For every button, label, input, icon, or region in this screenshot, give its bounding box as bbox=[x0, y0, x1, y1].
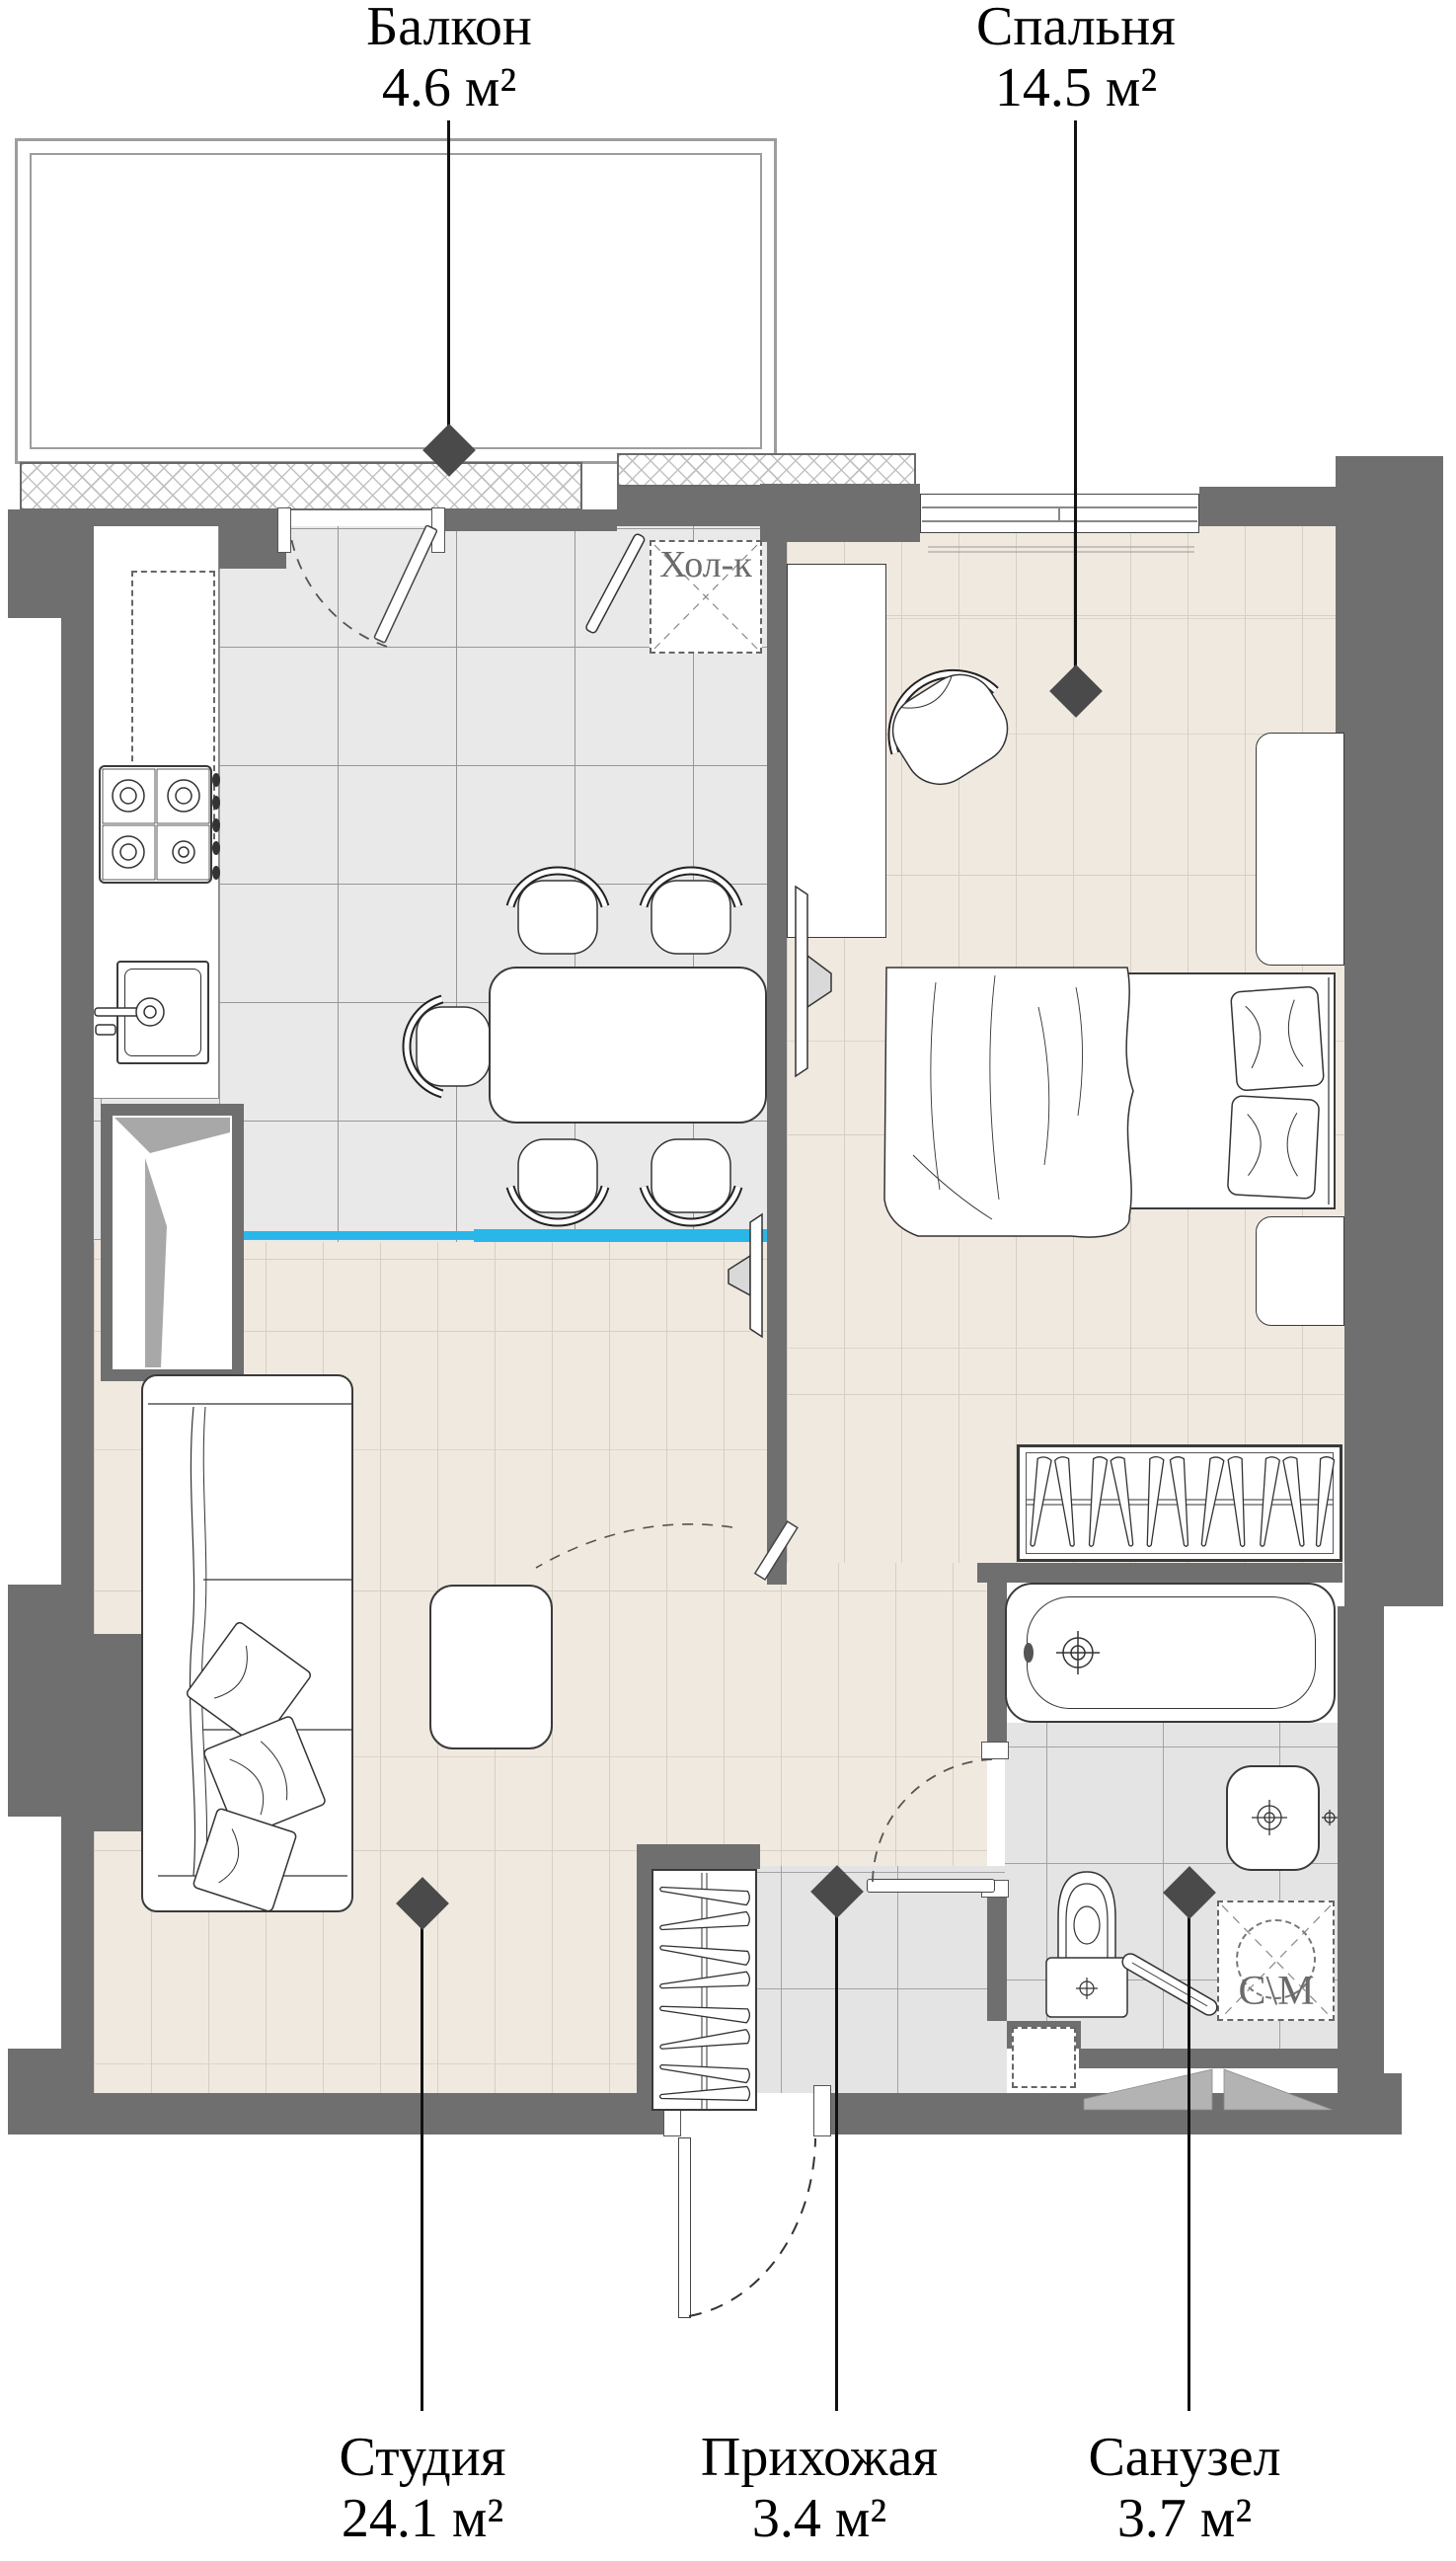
wall bbox=[437, 509, 617, 531]
wash-basin bbox=[1226, 1765, 1320, 1871]
door-jamb bbox=[981, 1742, 1009, 1759]
room-area: 14.5 м² bbox=[869, 57, 1283, 118]
kitchen-cabinet-inner bbox=[113, 1116, 232, 1369]
hallway-leader bbox=[835, 1907, 838, 2411]
bottom-wall bbox=[817, 2093, 1402, 2134]
wall bbox=[1344, 733, 1443, 1606]
wardrobe-hallway bbox=[651, 1869, 757, 2111]
room-area: 24.1 м² bbox=[215, 2488, 630, 2549]
entrance-door-arc bbox=[689, 2138, 815, 2316]
closet-wall bbox=[637, 1844, 760, 1869]
bath-mat bbox=[1012, 2027, 1076, 2088]
entrance-door-leaf bbox=[678, 2137, 691, 2318]
wall-pier bbox=[1336, 456, 1443, 733]
studio-label: Студия 24.1 м² bbox=[215, 2427, 630, 2549]
closet-wall bbox=[637, 1869, 651, 2093]
door-jamb bbox=[431, 507, 445, 553]
bathtub-inner bbox=[1027, 1596, 1316, 1709]
kitchen-sink-bowl bbox=[124, 969, 201, 1056]
kitchen-window bbox=[617, 453, 916, 487]
room-name: Прихожая bbox=[612, 2427, 1027, 2488]
balcony-frame-inner bbox=[30, 153, 762, 449]
wall bbox=[61, 526, 94, 2134]
zone-divider bbox=[474, 1229, 767, 1242]
bed bbox=[893, 972, 1336, 1209]
bedroom-leader bbox=[1074, 120, 1077, 675]
wall bbox=[1079, 2049, 1338, 2068]
room-area: 4.6 м² bbox=[242, 57, 656, 118]
bathroom-label: Санузел 3.7 м² bbox=[977, 2427, 1392, 2549]
bathroom-wall bbox=[977, 1563, 1342, 1583]
bathroom-door-leaf bbox=[867, 1879, 995, 1893]
wall-pier bbox=[94, 1634, 141, 1831]
floor-plan: Хол-к С\М Балкон 4.6 м² Спальня 14.5 м² … bbox=[0, 0, 1456, 2561]
room-name: Спальня bbox=[869, 0, 1283, 57]
bedroom-window bbox=[920, 494, 1199, 533]
bedroom-label: Спальня 14.5 м² bbox=[869, 0, 1283, 118]
room-name: Студия bbox=[215, 2427, 630, 2488]
hallway-label: Прихожая 3.4 м² bbox=[612, 2427, 1027, 2549]
balcony-leader bbox=[447, 120, 450, 432]
studio-leader bbox=[421, 1921, 423, 2411]
zone-divider bbox=[227, 1231, 474, 1239]
bottom-wall bbox=[8, 2093, 681, 2134]
fridge-label: Хол-к bbox=[651, 545, 760, 584]
wardrobe-bedroom-inner bbox=[1026, 1452, 1334, 1554]
bathroom-wall bbox=[987, 1886, 1007, 2021]
wall bbox=[1338, 1606, 1384, 2073]
nightstand bbox=[1256, 1216, 1344, 1326]
partition-wall bbox=[767, 526, 787, 1585]
bathroom-leader bbox=[1188, 1909, 1190, 2411]
gas-stove bbox=[99, 765, 212, 884]
room-name: Балкон bbox=[242, 0, 656, 57]
wall bbox=[8, 569, 61, 618]
bedroom-window-mullion bbox=[922, 520, 1197, 522]
balcony-label: Балкон 4.6 м² bbox=[242, 0, 656, 118]
sofa bbox=[141, 1374, 353, 1912]
dining-table bbox=[489, 967, 767, 1124]
door-jamb bbox=[813, 2085, 831, 2136]
balcony-glazing bbox=[20, 462, 582, 510]
washer-label: С\М bbox=[1227, 1970, 1326, 2013]
wall-pier bbox=[8, 1585, 61, 1817]
bedroom-window-tick bbox=[1058, 506, 1060, 520]
room-area: 3.7 м² bbox=[977, 2488, 1392, 2549]
dresser bbox=[1256, 733, 1344, 966]
bedroom-window-mullion bbox=[922, 506, 1197, 508]
door-jamb bbox=[277, 507, 291, 553]
bathroom-wall bbox=[987, 1583, 1007, 1757]
wall bbox=[1199, 487, 1336, 526]
coffee-table bbox=[429, 1585, 553, 1749]
room-name: Санузел bbox=[977, 2427, 1392, 2488]
desk bbox=[787, 564, 886, 938]
room-area: 3.4 м² bbox=[612, 2488, 1027, 2549]
